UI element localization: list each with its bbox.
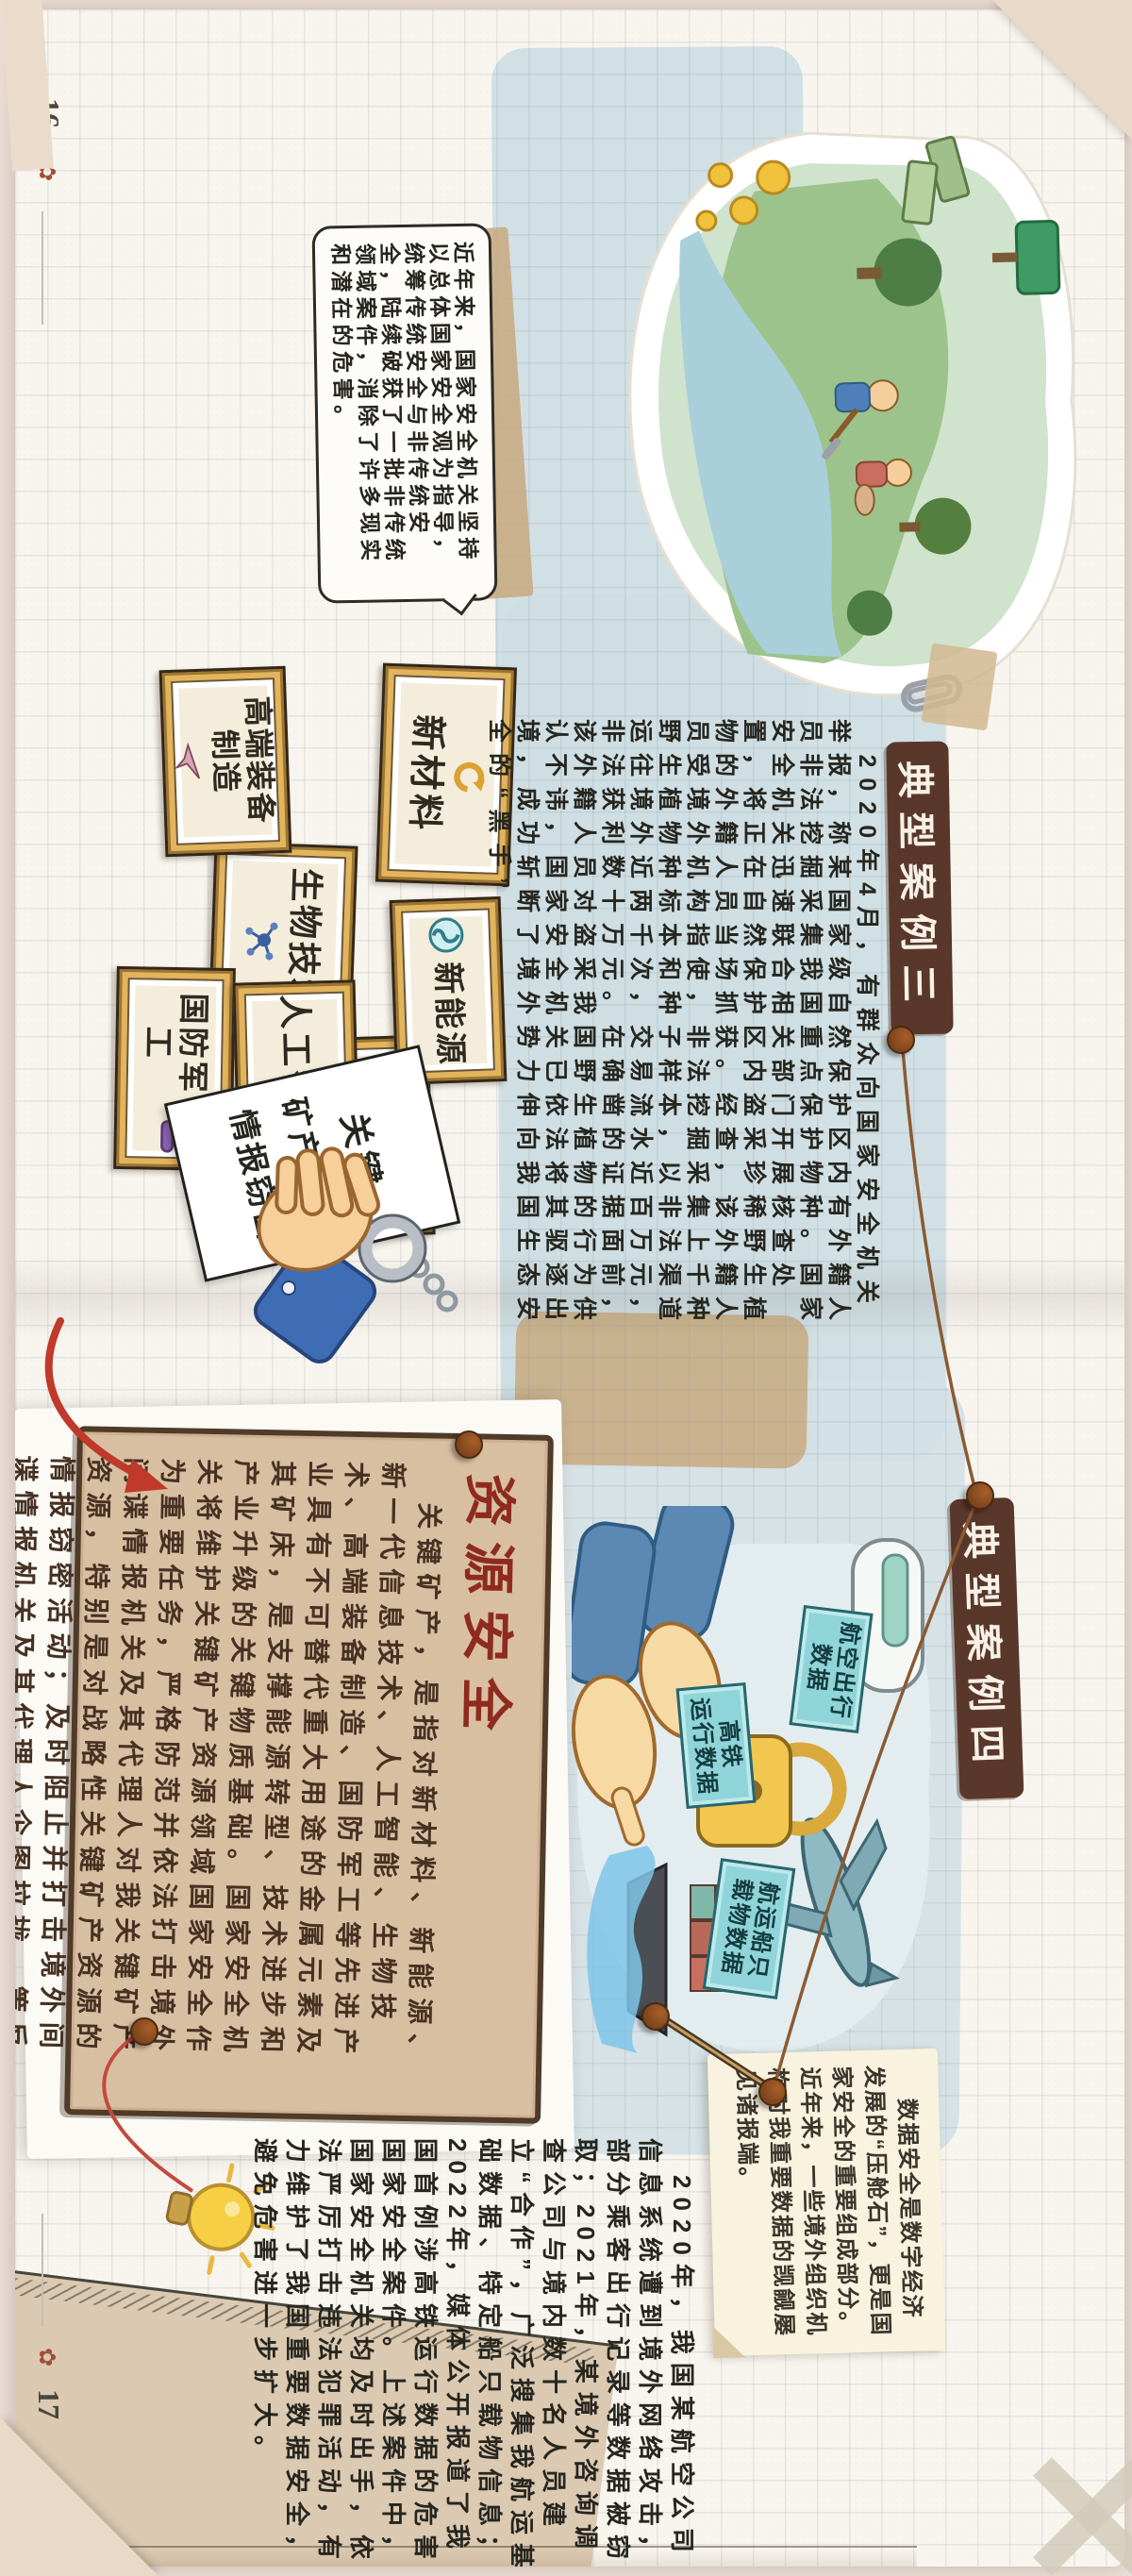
case4-note: 数据安全是数字经济发展的“压舱石”，更是国家安全的重要组成部分。近年来，一些境外… xyxy=(707,2049,945,2356)
tag-air-travel-data: 航空出行 数据 xyxy=(789,1605,873,1733)
case4-body: 2020年，我国某航空公司信息系统遭到境外网络攻击，部分乘客出行记录等数据被窃取… xyxy=(249,2138,698,2567)
intro-text: 近年来，国家安全机关坚持以总体国家安全观为指导，统筹传统安全与非传统安全，陆续破… xyxy=(328,242,481,566)
pushpin xyxy=(641,2002,670,2031)
case4-note-text: 数据安全是数字经济发展的“压舱石”，更是国家安全的重要组成部分。近年来，一些境外… xyxy=(728,2064,927,2340)
case3-title-ribbon: 典型案例三 xyxy=(886,741,953,1034)
tape-patch xyxy=(921,644,997,731)
badge-high-end-equipment-label: 高端装备 制造 xyxy=(206,695,277,826)
pushpin xyxy=(758,2078,787,2106)
recycle-icon xyxy=(449,754,489,796)
resource-title: 资源安全 xyxy=(444,1473,533,2093)
corner-fold-bottom-right xyxy=(0,2417,158,2576)
corner-fold-top-left xyxy=(992,0,1132,140)
pushpin xyxy=(130,2017,158,2046)
folio-rule xyxy=(42,2214,43,2327)
badge-defense-industry-label: 国防军工 xyxy=(139,979,210,1107)
pushpin xyxy=(455,1430,483,1459)
badge-new-materials-label: 新材料 xyxy=(404,714,448,834)
handcuff-ring xyxy=(366,1222,419,1275)
pushpin xyxy=(887,1026,915,1054)
case3-title: 典型案例三 xyxy=(891,761,950,1016)
case3-body: 2020年4月，有群众向国家安全机关举报，称某国家级自然保护区内有外籍人员非法挖… xyxy=(485,719,881,1330)
tag-rail-operation-data: 高铁 运行数据 xyxy=(676,1682,757,1809)
airplane-icon xyxy=(175,741,205,785)
handcuffed-hand xyxy=(191,1146,474,1363)
note-folded-corner xyxy=(712,2325,745,2358)
ecology-illustration xyxy=(601,78,1108,728)
folio-flower-icon: ✿ xyxy=(33,2348,60,2367)
paper-sheet: 近年来，国家安全机关坚持以总体国家安全观为指导，统筹传统安全与非传统安全，陆续破… xyxy=(15,9,1124,2567)
intro-bubble: 近年来，国家安全机关坚持以总体国家安全观为指导，统筹传统安全与非传统安全，陆续破… xyxy=(312,223,498,603)
right-page-number: 17 xyxy=(31,2389,66,2419)
badge-new-energy-label: 新能源 xyxy=(429,962,469,1067)
data-illustration: 航空出行 数据 高铁 运行数据 航运船只 载物数据 xyxy=(572,1506,949,2063)
molecule-icon xyxy=(242,918,282,962)
folio-rule xyxy=(42,211,43,325)
badge-high-end-equipment: 高端装备 制造 xyxy=(159,666,292,858)
case4-title: 典型案例四 xyxy=(955,1520,1018,1777)
magazine-spread: 近年来，国家安全机关坚持以总体国家安全观为指导，统筹传统安全与非传统安全，陆续破… xyxy=(0,0,1132,2576)
resource-body: 关键矿产，是指对新材料、新能源、新一代信息技术、人工智能、生物技术、高端装备制造… xyxy=(15,1453,448,2092)
case4-title-ribbon: 典型案例四 xyxy=(949,1497,1024,1799)
pushpin xyxy=(966,1481,994,1510)
energy-icon xyxy=(425,914,466,955)
